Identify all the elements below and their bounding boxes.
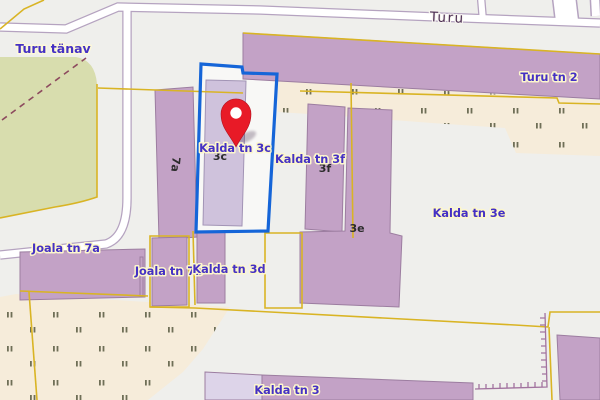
map-canvas[interactable]: 7a 3c 3f 3e Turu Turu tänav Turu tn 2 Ka… xyxy=(0,0,600,400)
label-joala-tn-7a: Joala tn 7a xyxy=(31,242,100,255)
label-turu-tanav: Turu tänav xyxy=(15,41,90,56)
label-turu-tn-2: Turu tn 2 xyxy=(520,71,577,84)
marker-hole xyxy=(230,107,241,118)
label-kalda-tn-3: Kalda tn 3 xyxy=(254,384,319,397)
building-southeast xyxy=(557,335,600,400)
label-kalda-tn-3d: Kalda tn 3d xyxy=(192,263,265,276)
label-kalda-tn-3c: Kalda tn 3c xyxy=(199,142,271,155)
green-area xyxy=(0,57,97,218)
road-stub1 xyxy=(481,0,483,21)
building-number-3e: 3e xyxy=(349,222,364,235)
road-stub3 xyxy=(595,0,596,16)
road-stub2 xyxy=(564,0,567,21)
road-label-turu: Turu xyxy=(428,9,465,27)
building-number-7a: 7a xyxy=(168,156,183,172)
label-kalda-tn-3f: Kalda tn 3f xyxy=(275,153,346,166)
label-kalda-tn-3e: Kalda tn 3e xyxy=(433,207,506,220)
